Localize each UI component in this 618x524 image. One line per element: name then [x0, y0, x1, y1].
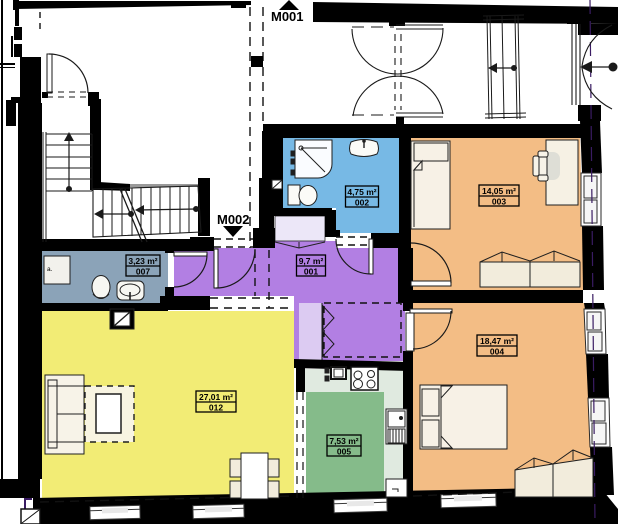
- svg-text:001: 001: [304, 267, 318, 277]
- svg-text:4,75 m²: 4,75 m²: [347, 187, 376, 197]
- svg-text:002: 002: [355, 198, 369, 208]
- svg-text:27,01 m²: 27,01 m²: [199, 392, 233, 402]
- svg-text:14,05 m²: 14,05 m²: [482, 186, 516, 196]
- svg-text:18,47 m²: 18,47 m²: [480, 336, 514, 346]
- svg-text:004: 004: [490, 347, 504, 357]
- svg-text:9,7 m²: 9,7 m²: [299, 256, 324, 266]
- svg-text:3,23 m²: 3,23 m²: [128, 256, 157, 266]
- svg-text:a.: a.: [47, 266, 53, 273]
- svg-text:7,53 m²: 7,53 m²: [329, 436, 358, 446]
- svg-text:005: 005: [337, 447, 351, 457]
- svg-text:M001: M001: [271, 9, 304, 24]
- svg-text:003: 003: [492, 197, 506, 207]
- svg-text:012: 012: [209, 403, 223, 413]
- svg-text:M002: M002: [217, 212, 250, 227]
- svg-text:007: 007: [136, 267, 150, 277]
